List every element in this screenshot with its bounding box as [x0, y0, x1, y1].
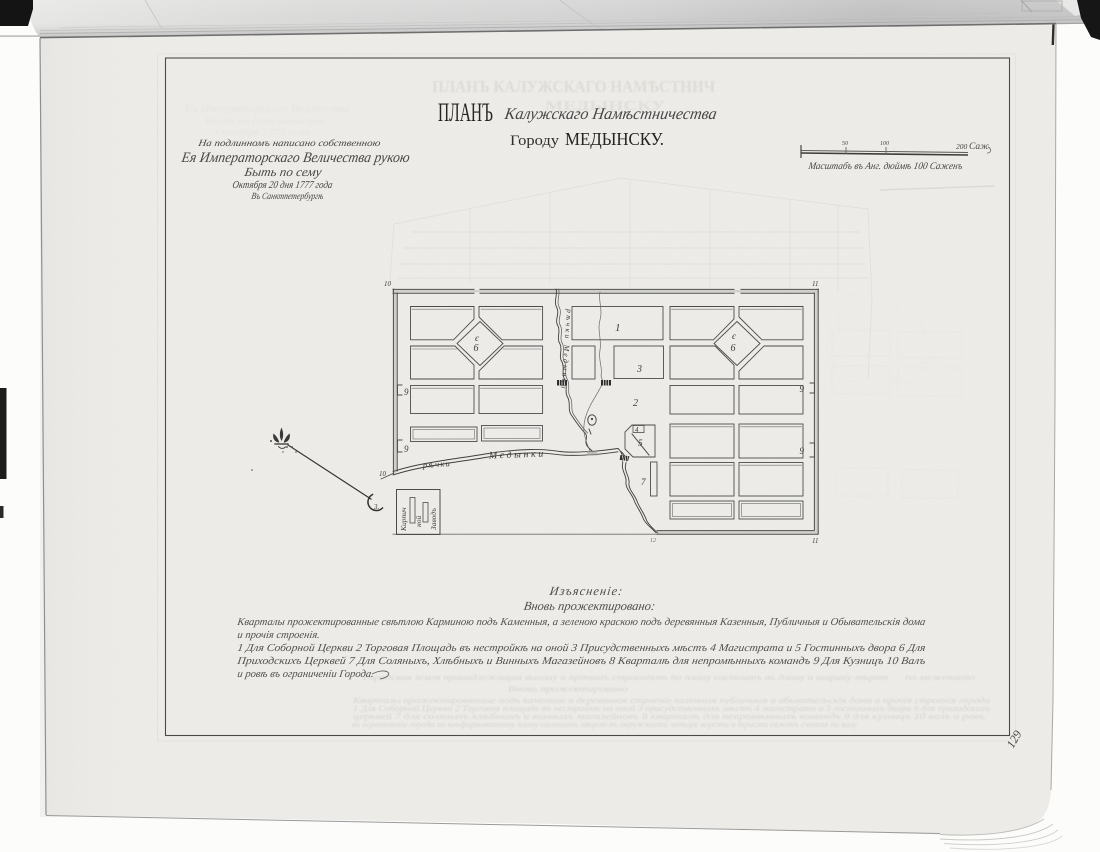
svg-text:Приходскихъ Церквей 7 Для Соля: Приходскихъ Церквей 7 Для Соляныхъ, Хлѣб…	[235, 656, 926, 667]
svg-text:рѣчки: рѣчки	[421, 458, 451, 470]
svg-text:ПЛАНЪ КАЛУЖСКАГО НАМѢСТНИЧ: ПЛАНЪ КАЛУЖСКАГО НАМѢСТНИЧ	[432, 77, 715, 96]
svg-text:Ея Императорскаго Величества р: Ея Императорскаго Величества рукою	[179, 150, 410, 166]
svg-text:Ея Императорскаго Величества: Ея Императорскаго Величества	[184, 104, 350, 115]
svg-text:ПЛАНЪ: ПЛАНЪ	[438, 98, 493, 127]
svg-text:100: 100	[880, 141, 889, 147]
svg-text:11: 11	[812, 280, 818, 288]
svg-text:є: є	[732, 331, 736, 341]
svg-text:7: 7	[641, 477, 646, 487]
svg-text:Саж: Саж	[969, 142, 989, 152]
svg-text:Вновь прожектировано: Вновь прожектировано	[508, 685, 628, 694]
svg-text:МЕДЫНСКУ.: МЕДЫНСКУ.	[565, 129, 664, 149]
svg-text:Медынки: Медынки	[488, 449, 546, 462]
svg-text:2: 2	[633, 398, 638, 409]
svg-text:по межеванію: по межеванію	[905, 673, 976, 682]
svg-text:200: 200	[956, 142, 968, 151]
svg-text:Октября 1777 года: Октября 1777 года	[215, 128, 310, 137]
svg-text:6: 6	[731, 343, 736, 354]
svg-text:є: є	[475, 333, 479, 343]
svg-text:и ровѣ въ ограниченiи Города.: и ровѣ въ ограниченiи Города.	[237, 669, 375, 680]
svg-text:1 Для Соборной Церкви 2 Торгов: 1 Для Соборной Церкви 2 Торговая Площадь…	[237, 643, 927, 654]
svg-text:1: 1	[615, 322, 621, 334]
svg-text:11: 11	[812, 537, 818, 545]
svg-text:9: 9	[800, 446, 805, 456]
svg-text:9: 9	[404, 387, 409, 397]
svg-text:ной: ной	[414, 516, 423, 527]
svg-text:и прочiя строенiя.: и прочiя строенiя.	[237, 630, 321, 641]
svg-text:6: 6	[474, 343, 479, 354]
svg-text:Вновь прожектировано:: Вновь прожектировано:	[523, 599, 656, 613]
svg-text:12: 12	[650, 538, 656, 544]
svg-text:9: 9	[404, 444, 409, 454]
svg-text:3: 3	[636, 364, 642, 375]
svg-text:4: 4	[635, 426, 639, 434]
svg-text:5: 5	[638, 438, 643, 448]
svg-text:Быть по сему написано: Быть по сему написано	[204, 116, 326, 126]
svg-text:Калужскаго Намѣстничества: Калужскаго Намѣстничества	[502, 104, 718, 123]
svg-text:Городская земля принадлежащая: Городская земля принадлежащая выгону и п…	[362, 673, 889, 682]
svg-text:Въ Санктпетербургѣ: Въ Санктпетербургѣ	[251, 191, 325, 202]
svg-text:10: 10	[384, 280, 392, 288]
svg-text:Городу: Городу	[510, 133, 560, 149]
svg-text:Быть по сему: Быть по сему	[242, 165, 323, 179]
svg-text:10: 10	[379, 470, 387, 478]
svg-text:Кварталы прожектированные свѣт: Кварталы прожектированные свѣтлою Кармин…	[236, 617, 927, 628]
svg-text:Масштабъ въ Анг. дюймѣ 100 Саж: Масштабъ въ Анг. дюймѣ 100 Саженъ	[807, 161, 964, 172]
svg-text:50: 50	[842, 141, 848, 147]
svg-text:Октября 20 дня 1777 года: Октября 20 дня 1777 года	[232, 180, 334, 191]
svg-text:Заводъ: Заводъ	[429, 508, 438, 530]
svg-text:3.: 3.	[373, 503, 380, 511]
svg-text:Кирпич: Кирпич	[399, 507, 408, 532]
svg-text:Изъясненіе:: Изъясненіе:	[548, 584, 625, 598]
svg-text:На подлинномъ написано собстве: На подлинномъ написано собственною	[196, 138, 381, 149]
svg-text:въ ограниченіи города по конфи: въ ограниченіи города по конфирмованному…	[352, 720, 857, 729]
svg-text:9: 9	[800, 384, 805, 394]
